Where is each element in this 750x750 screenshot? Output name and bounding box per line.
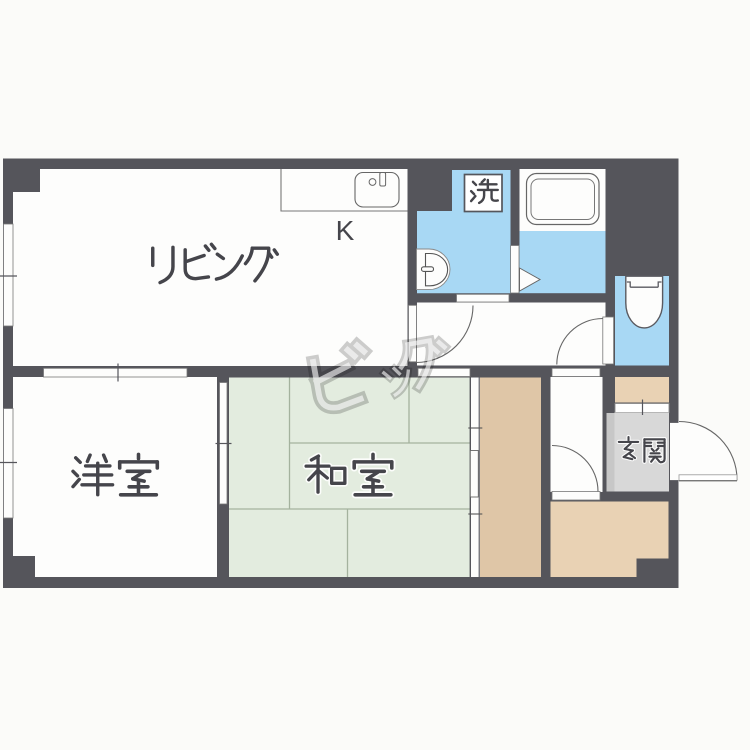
svg-text:K: K	[336, 215, 355, 246]
